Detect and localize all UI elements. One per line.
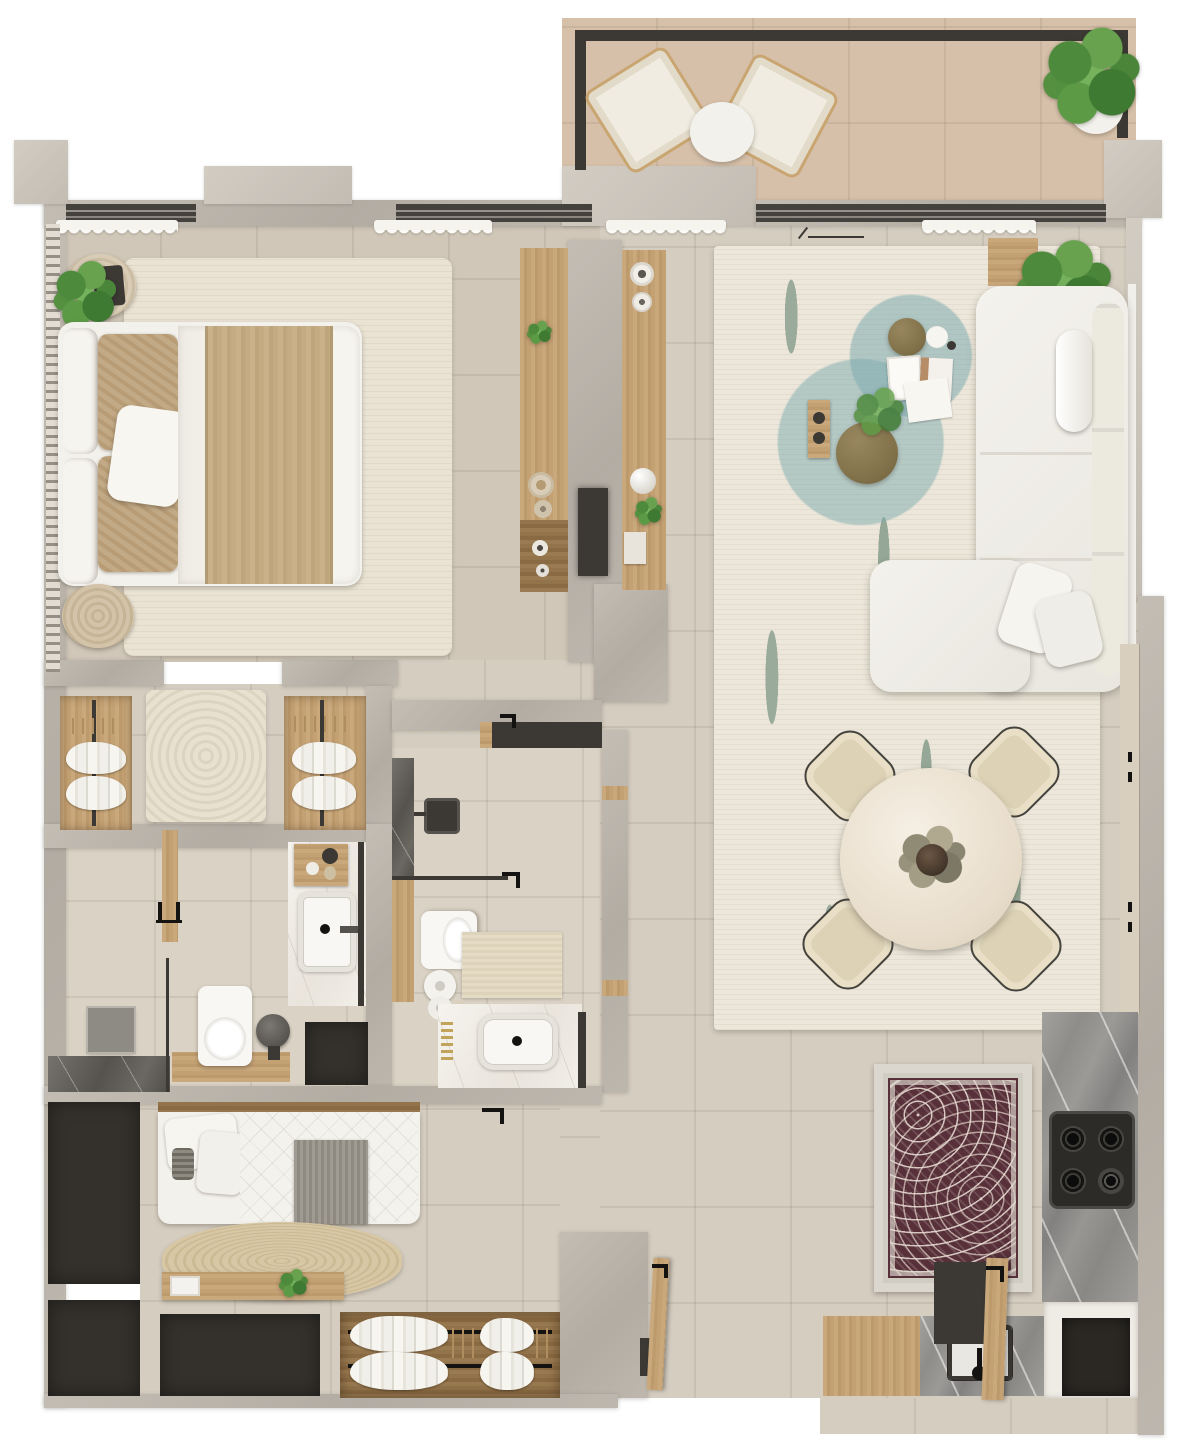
coffee-table-sprig (852, 386, 904, 440)
storage-block-3 (160, 1314, 320, 1396)
storage-block-1 (48, 1102, 140, 1284)
vanity-glass-panel (358, 842, 364, 1006)
remote-2 (813, 432, 825, 444)
sofa-seat-seam-1 (980, 452, 1092, 455)
balcony-side-table (690, 102, 754, 162)
wall-pier-top-left (14, 140, 68, 204)
door-swing-mark (808, 236, 864, 238)
master-bath-right-wall (366, 824, 392, 1092)
hob-burner-1 (1060, 1126, 1086, 1152)
wardrobe2-clothes-1 (350, 1316, 448, 1352)
kitchen-floor-ext (820, 1398, 1140, 1434)
rain-shower-head (424, 798, 460, 834)
bath2-faucet (512, 1036, 522, 1046)
white-card (903, 377, 952, 423)
wardrobe-right-clothes-2 (292, 776, 356, 810)
toiletries-bottle-2 (306, 862, 319, 875)
decor-stack-1 (528, 472, 554, 498)
bath2-shower-handle-2 (516, 872, 520, 888)
gas-hob (1052, 1114, 1132, 1206)
bath2-door-jamb-lower (602, 980, 628, 996)
master-basin-drain (320, 924, 330, 934)
toiletries-tray (294, 844, 348, 886)
desk-plant (278, 1268, 308, 1300)
closet-zen-rug (146, 690, 266, 822)
floor-plan (0, 0, 1182, 1445)
cabinet-dish-2 (536, 564, 549, 577)
bedroom2-wall-handle-2 (500, 1108, 504, 1124)
wardrobe-left-clothes-2 (66, 776, 126, 810)
wardrobe-right-clothes-1 (292, 742, 356, 774)
wardrobe-left-hangers (72, 718, 120, 734)
wardrobe2-hangers-2 (536, 1328, 556, 1358)
cutting-board-counter (823, 1316, 920, 1396)
wardrobe-left-clothes-1 (66, 742, 126, 774)
sofa-bolster (1056, 330, 1092, 432)
bath2-entry-bench (492, 722, 602, 748)
cabinet-handle-4 (1128, 922, 1132, 932)
kitchen-rug-field (883, 1073, 1023, 1283)
remote-1 (813, 412, 825, 424)
cabinet-handle-3 (1128, 902, 1132, 912)
decor-stack-2 (534, 500, 552, 518)
balcony-plant (1040, 24, 1140, 134)
toiletries-bottle-3 (324, 866, 336, 880)
laptop (170, 1276, 200, 1296)
waste-bin (256, 1014, 290, 1048)
wardrobe2-clothes-4 (480, 1352, 534, 1390)
hob-burner-4 (1098, 1168, 1124, 1194)
decor-plate-2 (632, 292, 652, 312)
cabinet-handle-1 (1128, 752, 1132, 762)
storage-block-2 (48, 1300, 140, 1396)
master-toilet (198, 986, 252, 1066)
shower-valve-bar (156, 920, 182, 923)
console-plant-bedroom (526, 320, 552, 346)
hall-gap-floor (560, 1104, 604, 1232)
shower-floor (48, 1056, 170, 1092)
curtain-living-left (606, 224, 726, 246)
bath2-glass-panel (578, 1012, 586, 1088)
single-bed-pillow-2 (195, 1130, 246, 1196)
centerpiece-vase (916, 844, 948, 876)
bed-head-cushion-1 (62, 328, 98, 454)
bedroom-bottom-wall-a (44, 660, 164, 686)
curtain-bedroom-right (374, 224, 492, 246)
entry-door-handle-2 (1000, 1266, 1004, 1282)
bath-dark-mat (305, 1022, 368, 1085)
balcony-railing-left (575, 30, 586, 170)
bath2-door-handle-top-2 (512, 714, 516, 728)
wall-pier-top-center (204, 166, 352, 204)
bedroom-stool (62, 584, 134, 648)
wardrobe-right-hangers (294, 716, 346, 732)
console-box (624, 532, 646, 564)
bedroom-bottom-wall-b (282, 660, 398, 686)
media-console-lower-cabinet (520, 520, 568, 592)
bath2-right-wall (602, 730, 628, 1092)
coffee-table-small (888, 318, 926, 356)
wall-tv (578, 488, 608, 576)
entry-wall-column (560, 1232, 648, 1398)
curtain-bedroom-left (56, 224, 178, 246)
bed-head-cushion-2 (62, 458, 98, 584)
wardrobe2-clothes-2 (480, 1318, 534, 1352)
shower-bench (88, 1008, 134, 1052)
tv-wall-step (594, 584, 668, 702)
wardrobe2-hangers-1 (452, 1328, 478, 1358)
bin-stand (268, 1046, 280, 1060)
bath2-shower-wall (392, 758, 414, 880)
balcony-right-wall-block (1104, 140, 1162, 218)
shower-valve-1 (158, 902, 162, 922)
decor-dot (947, 341, 956, 350)
side-dish-white (926, 326, 948, 348)
wardrobe2-clothes-3 (350, 1352, 448, 1390)
bedroom2-door-handle-2 (664, 1264, 668, 1278)
hob-burner-2 (1098, 1126, 1124, 1152)
console-plant-living (634, 496, 662, 528)
toiletries-bottle-1 (322, 848, 338, 864)
bath2-gold-decor (441, 1020, 453, 1060)
right-wall-white-strip (1128, 284, 1136, 644)
bed-throw-blanket (208, 326, 330, 584)
decor-plate-1 (630, 262, 654, 286)
bath2-door-jamb-upper (602, 786, 628, 800)
bath2-mat (462, 932, 562, 998)
single-bed-accent-cushion (172, 1148, 194, 1180)
hob-burner-3 (1060, 1168, 1086, 1194)
entry-doorway-opening (934, 1262, 986, 1344)
shower-wood-panel (162, 830, 178, 942)
right-wall (1138, 596, 1164, 1435)
cabinet-handle-2 (1128, 772, 1132, 782)
single-bed-grey-throw (294, 1140, 368, 1224)
decor-ball (630, 468, 656, 494)
tray-with-remotes (808, 400, 830, 458)
built-in-appliance (1062, 1318, 1130, 1396)
closet-right-wall (366, 686, 392, 830)
rain-shower-arm (414, 812, 426, 816)
shower-glass-screen (166, 958, 169, 1092)
shower-valve-2 (176, 902, 180, 922)
bath2-wood-cabinet (392, 880, 414, 1002)
cabinet-dish-1 (532, 540, 548, 556)
tall-cabinet-row (1120, 644, 1140, 1014)
